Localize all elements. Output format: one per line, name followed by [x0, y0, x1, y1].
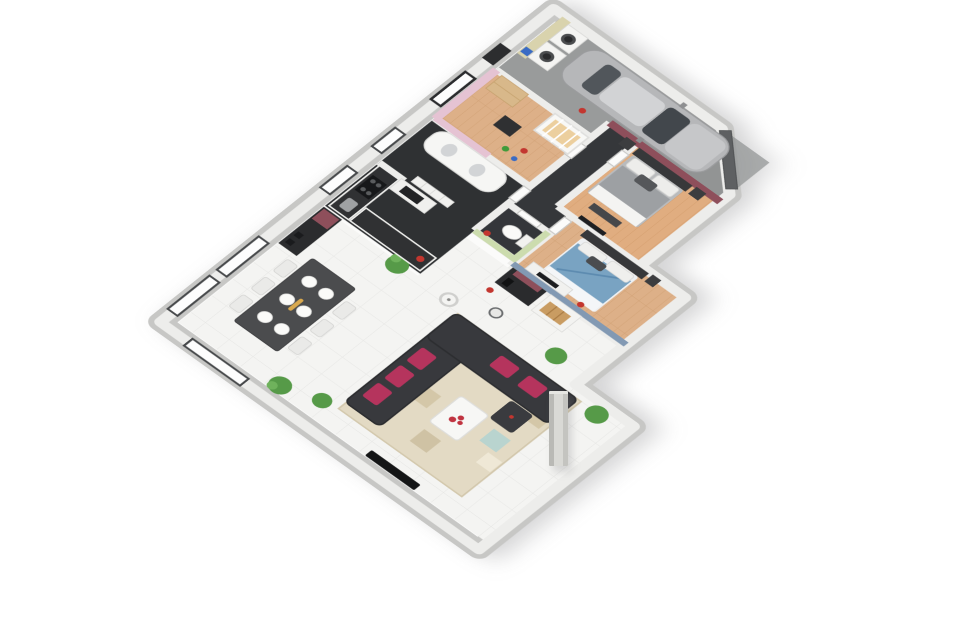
house-3d-floor-plan	[134, 0, 908, 572]
porch-pillar	[549, 391, 568, 466]
floor-plan-stage	[0, 0, 960, 617]
